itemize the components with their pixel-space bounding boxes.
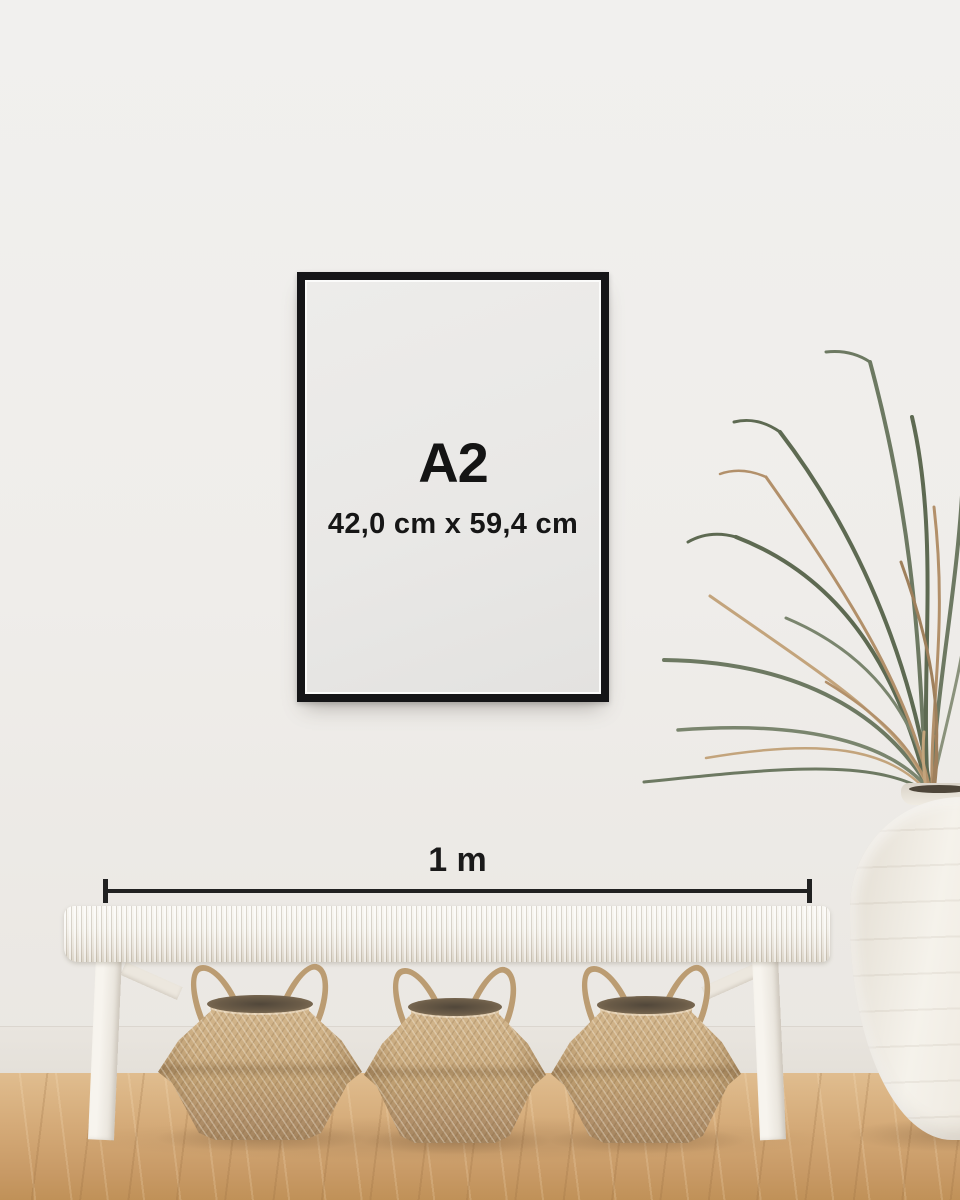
poster-dimensions-label: 42,0 cm x 59,4 cm — [328, 510, 578, 539]
measurement-label: 1 m — [103, 843, 812, 877]
bench-seat — [64, 906, 830, 962]
room-scene: A2 42,0 cm x 59,4 cm 1 m — [0, 0, 960, 1200]
basket-middle — [364, 1001, 546, 1143]
basket-body — [551, 999, 741, 1143]
measurement-line — [103, 889, 812, 893]
basket-body — [364, 1001, 546, 1143]
basket-rim — [597, 996, 696, 1014]
palm-plant-icon — [618, 332, 960, 812]
basket-right — [551, 999, 741, 1143]
poster-paper: A2 42,0 cm x 59,4 cm — [305, 280, 601, 694]
basket-rim — [207, 995, 313, 1013]
basket-rim — [408, 998, 503, 1016]
framed-poster: A2 42,0 cm x 59,4 cm — [297, 272, 609, 702]
basket-body — [158, 998, 362, 1140]
basket-left — [158, 998, 362, 1140]
poster-size-label: A2 — [418, 435, 488, 491]
